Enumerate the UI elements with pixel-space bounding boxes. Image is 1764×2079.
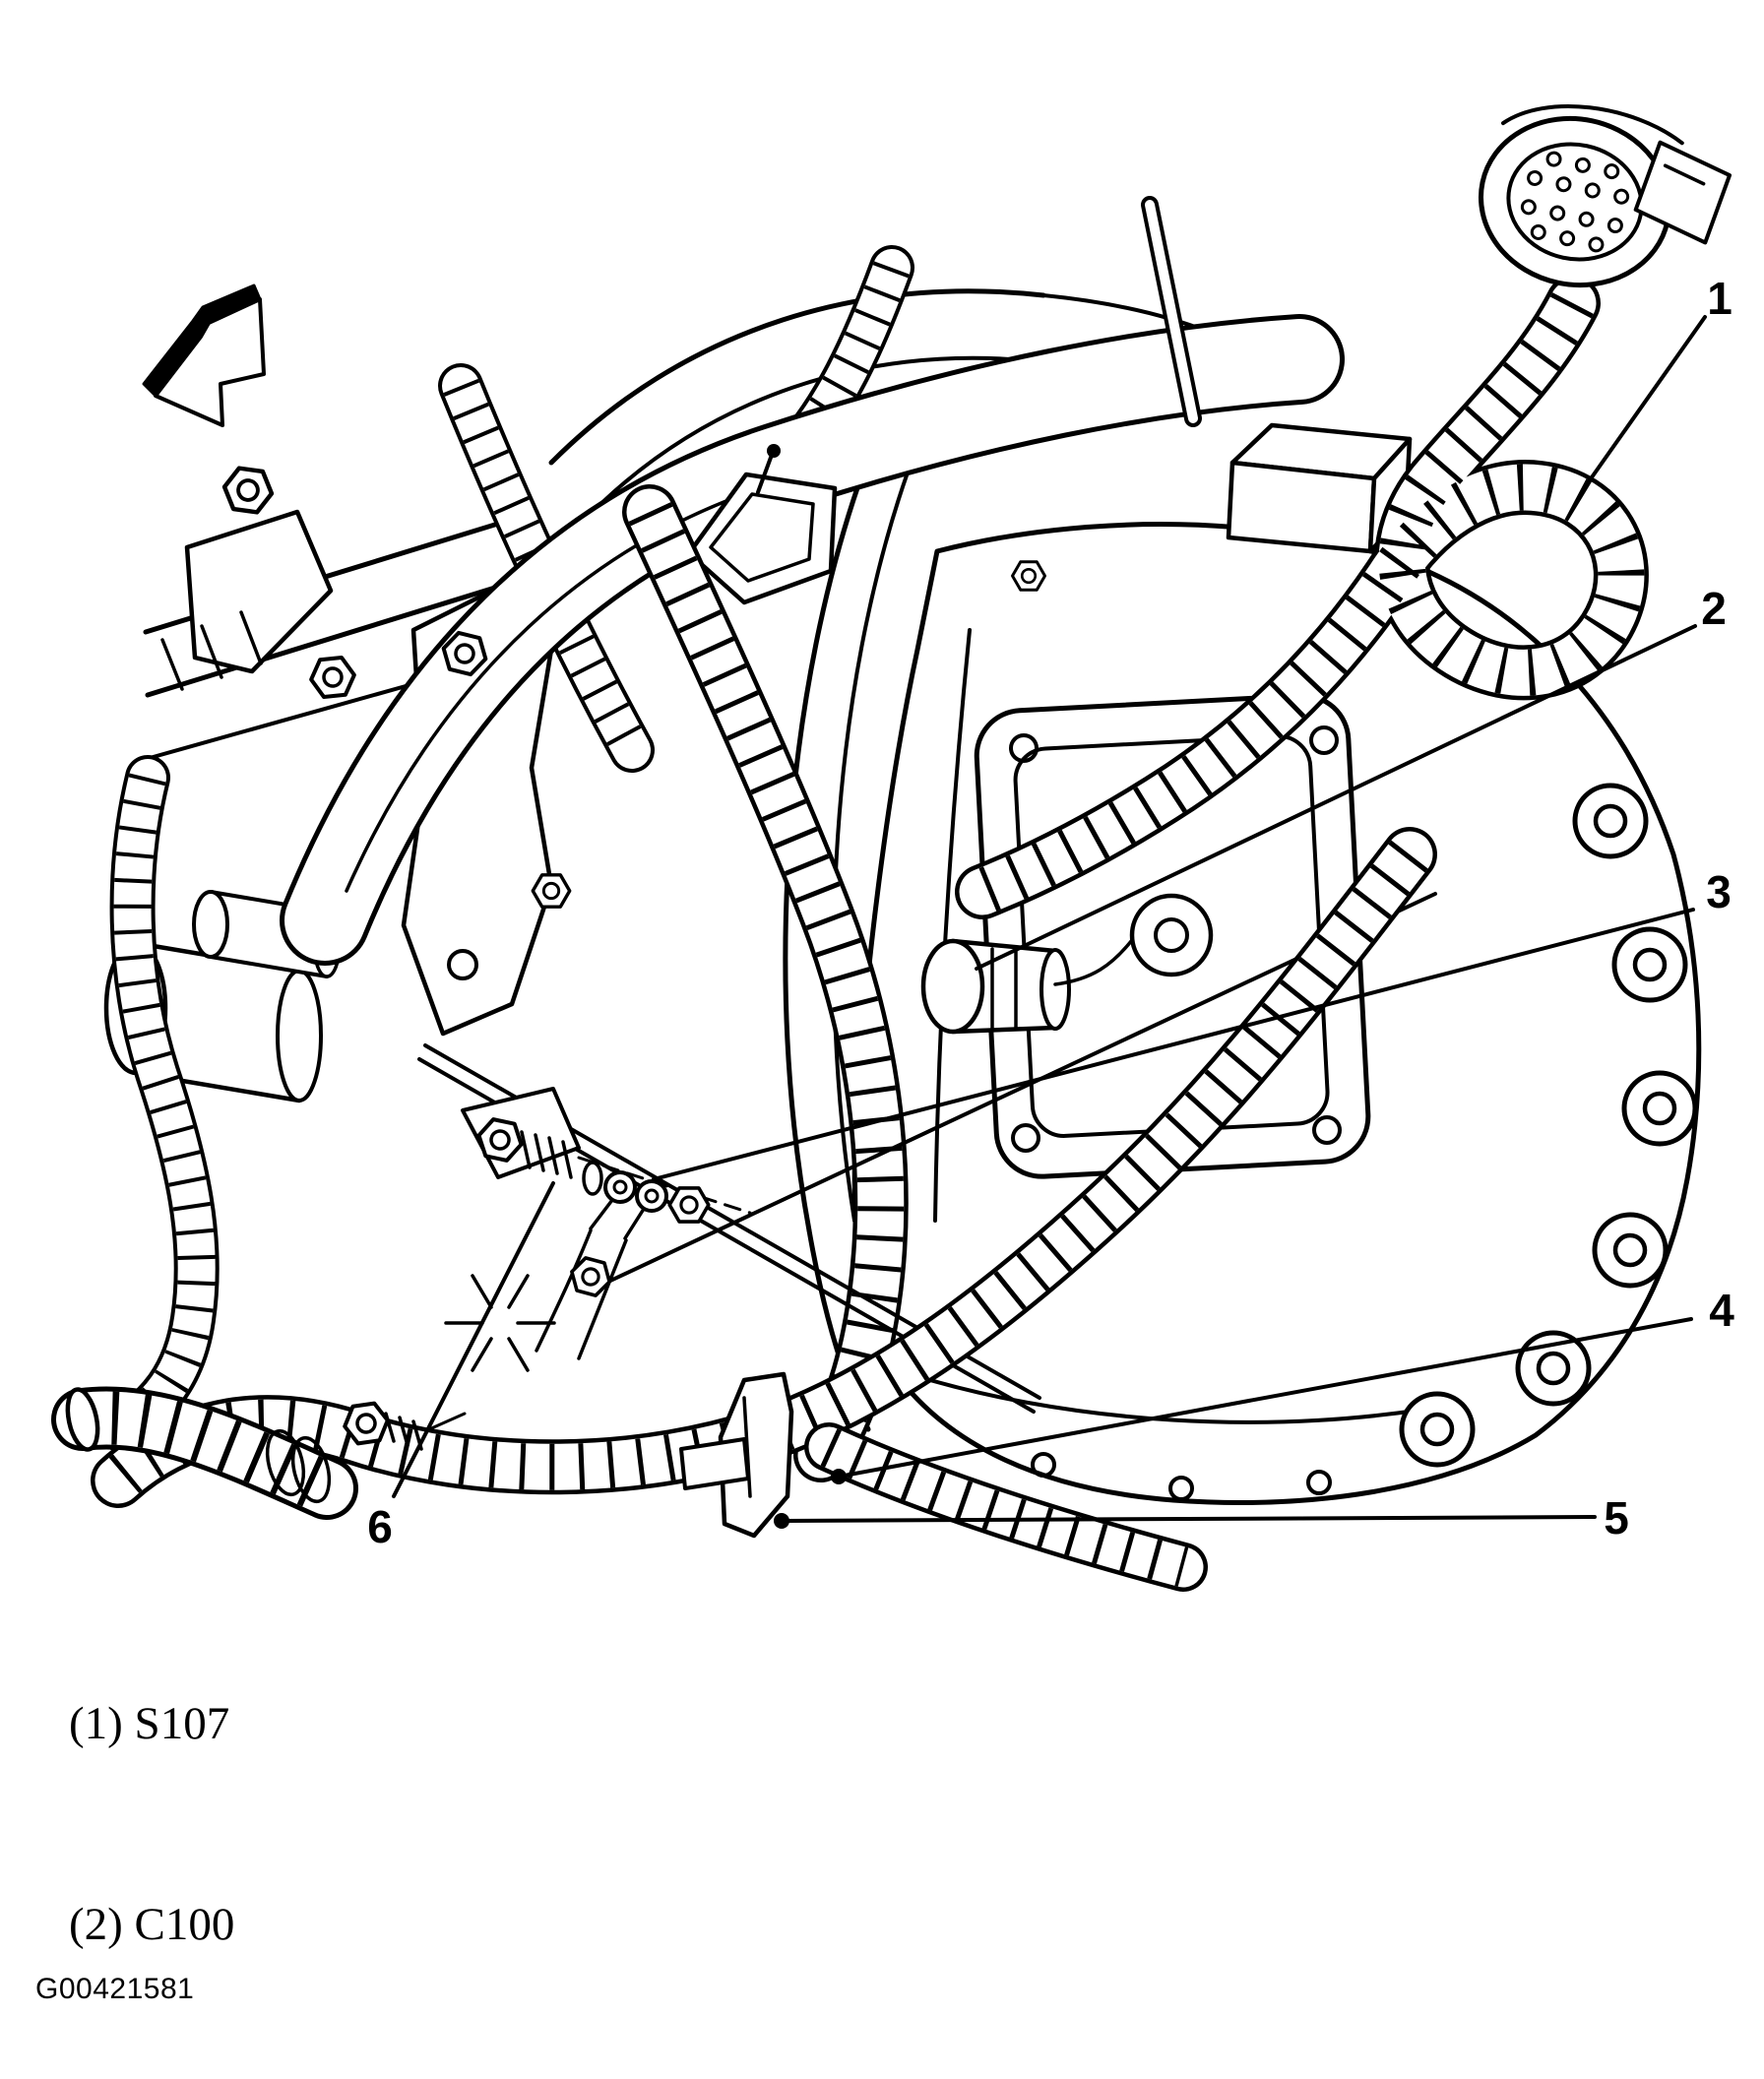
harness-center [650, 512, 881, 1455]
leader-dot-5 [774, 1513, 789, 1529]
callout-number-4: 4 [1709, 1285, 1734, 1336]
harness-left [120, 778, 197, 1429]
engine-wiring-harness-diagram: 1 2 3 4 5 6 [0, 0, 1764, 2079]
figure-code: G00421581 [35, 1973, 194, 2006]
harness-clamp-bracket [681, 1374, 791, 1536]
legend-item-1: (1) S107 [69, 1690, 235, 1757]
harness-connector [1466, 88, 1737, 312]
direction-arrow-icon [144, 285, 264, 425]
legend-item-2: (2) C100 [69, 1891, 235, 1958]
callout-number-1: 1 [1707, 273, 1732, 324]
callout-number-2: 2 [1701, 583, 1727, 634]
callout-number-5: 5 [1604, 1492, 1629, 1543]
service-manual-page: 1 2 3 4 5 6 (1) S107 (2) C100 (3) G113 (… [0, 0, 1764, 2079]
ground-bolt-g115 [343, 1276, 554, 1449]
leader-dot-4 [831, 1469, 847, 1484]
callout-number-3: 3 [1706, 866, 1732, 917]
callout-number-6: 6 [367, 1501, 393, 1552]
leader-line-1 [1587, 317, 1705, 484]
leader-line-5 [782, 1517, 1595, 1521]
